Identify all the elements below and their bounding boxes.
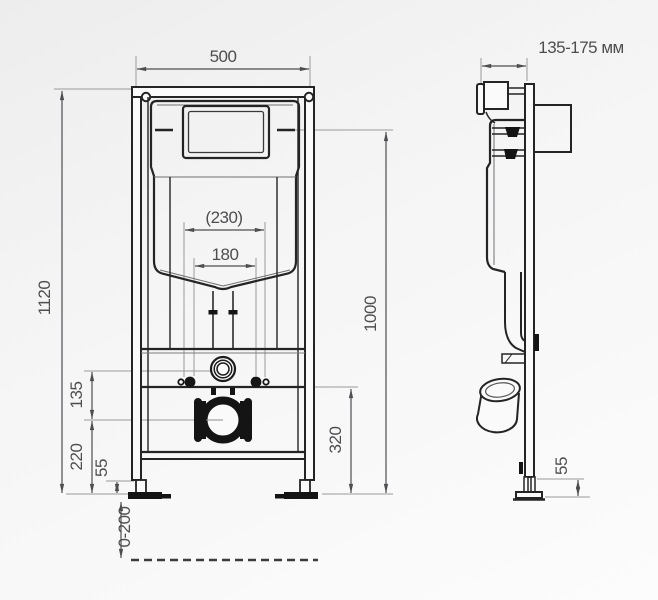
side-foot: [513, 477, 545, 500]
flush-actuator: [477, 82, 524, 123]
rail-bracket-upper: [534, 334, 539, 351]
drain-clamp: [194, 398, 252, 442]
label-side-foot-min: 55: [552, 457, 571, 475]
side-dimension-labels: 135-175 мм 55: [538, 38, 624, 475]
flush-pipes: [209, 291, 238, 349]
label-overall-height: 1120: [35, 281, 54, 316]
side-view: 135-175 мм 55: [477, 38, 624, 500]
label-depth-range: 135-175 мм: [538, 38, 624, 57]
drain-elbow: [477, 376, 521, 432]
label-floor-adjust: 0-200: [115, 506, 134, 547]
label-outlet-height: 220: [67, 444, 86, 471]
corner-screw-right: [305, 93, 313, 101]
label-stud-inner: 180: [212, 245, 239, 264]
label-foot-min: 55: [92, 459, 111, 477]
label-stud-outer: (230): [205, 208, 242, 227]
label-frame-width: 500: [210, 47, 237, 66]
rail-bracket-lower: [519, 462, 523, 474]
cistern-side: [487, 120, 524, 272]
front-view: 500 1120 (230) 180 135 220 55 0-200 320 …: [35, 47, 393, 560]
wall-box: [534, 105, 571, 152]
front-dimension-labels: 500 1120 (230) 180 135 220 55 0-200 320 …: [35, 47, 380, 547]
stud-230-right: [263, 379, 268, 384]
foot-left: [128, 480, 171, 499]
foot-right: [275, 480, 318, 499]
label-flush-height: 1000: [361, 296, 380, 332]
drawing-canvas: 500 1120 (230) 180 135 220 55 0-200 320 …: [0, 0, 658, 600]
flush-bend-pipe: [502, 272, 525, 363]
water-inlet: [211, 357, 235, 381]
stud-230-left: [178, 379, 183, 384]
front-dimension-lines: [62, 69, 386, 558]
label-outlet-height-right: 320: [326, 427, 345, 454]
side-rail: [525, 84, 534, 477]
installation-drawing: 500 1120 (230) 180 135 220 55 0-200 320 …: [0, 0, 658, 600]
label-inlet-to-outlet: 135: [67, 382, 86, 409]
stud-180-left: [185, 377, 196, 388]
stud-180-right: [251, 377, 262, 388]
access-panel: [183, 106, 269, 158]
corner-screw-left: [142, 93, 150, 101]
